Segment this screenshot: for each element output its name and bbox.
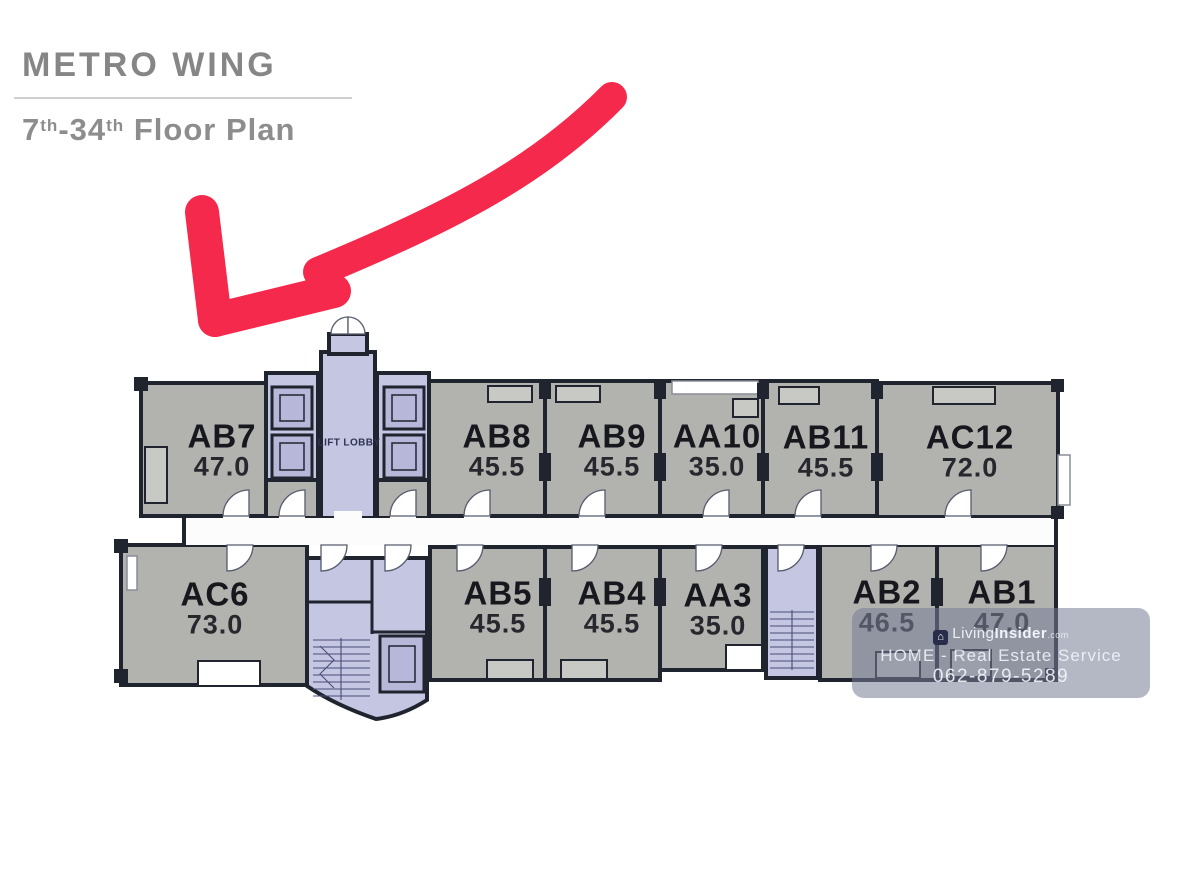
unit-area: 45.5 xyxy=(463,610,532,638)
stair-flight xyxy=(770,610,814,670)
watermark-phone: 062-879-5289 xyxy=(852,666,1150,688)
unit-id: AB1 xyxy=(967,575,1036,609)
lift-car xyxy=(272,435,312,478)
unit-id: AB9 xyxy=(577,419,646,453)
brand-bold: Insider xyxy=(995,625,1048,642)
unit-id: AC12 xyxy=(926,420,1014,454)
unit-area: 73.0 xyxy=(180,611,249,639)
lift-car xyxy=(384,435,424,478)
entry-door-arc xyxy=(331,317,348,334)
corridor xyxy=(185,518,1056,545)
unit-label-ab7: AB7 47.0 xyxy=(187,419,256,480)
lift-lobby-shape xyxy=(321,352,375,518)
unit-label-ab8: AB8 45.5 xyxy=(462,419,531,480)
unit-label-ab9: AB9 45.5 xyxy=(577,419,646,480)
unit-id: AB11 xyxy=(783,420,870,454)
unit-area: 45.5 xyxy=(577,453,646,481)
unit-label-aa10: AA10 35.0 xyxy=(673,419,761,480)
unit-area: 35.0 xyxy=(673,453,761,481)
brand-light: Living xyxy=(952,625,994,642)
floor-plan-page: METRO WING 7th-34th Floor Plan xyxy=(0,0,1200,889)
brand-tld: .com xyxy=(1047,630,1069,640)
lift-lobby-label: LIFT LOBBY xyxy=(318,438,381,449)
unit-area: 45.5 xyxy=(577,610,646,638)
unit-area: 45.5 xyxy=(783,454,870,482)
unit-label-ac6: AC6 73.0 xyxy=(180,577,249,638)
entry-door-arc xyxy=(348,317,365,334)
unit-id: AB2 xyxy=(852,575,921,609)
lift-car xyxy=(384,387,424,429)
unit-area: 45.5 xyxy=(462,453,531,481)
watermark-service-line: HOME - Real Estate Service xyxy=(852,646,1150,666)
watermark: ⌂LivingInsider.com HOME - Real Estate Se… xyxy=(852,608,1150,698)
watermark-brand: ⌂LivingInsider.com xyxy=(852,625,1150,645)
lobby-vestibule xyxy=(329,334,367,354)
unit-id: AB7 xyxy=(187,419,256,453)
unit-id: AB8 xyxy=(462,419,531,453)
unit-label-ab11: AB11 45.5 xyxy=(783,420,870,481)
service-lift xyxy=(380,636,424,692)
unit-id: AC6 xyxy=(180,577,249,611)
unit-area: 72.0 xyxy=(926,454,1014,482)
unit-area: 35.0 xyxy=(683,612,752,640)
unit-label-ac12: AC12 72.0 xyxy=(926,420,1014,481)
livinginsider-logo-icon: ⌂ xyxy=(933,630,948,645)
unit-id: AB5 xyxy=(463,576,532,610)
unit-id: AA10 xyxy=(673,419,761,453)
unit-label-aa3: AA3 35.0 xyxy=(683,578,752,639)
unit-area: 47.0 xyxy=(187,453,256,481)
unit-id: AA3 xyxy=(683,578,752,612)
unit-label-ab4: AB4 45.5 xyxy=(577,576,646,637)
unit-label-ab5: AB5 45.5 xyxy=(463,576,532,637)
pointer-arrow xyxy=(202,97,612,320)
unit-id: AB4 xyxy=(577,576,646,610)
lift-car xyxy=(272,387,312,429)
